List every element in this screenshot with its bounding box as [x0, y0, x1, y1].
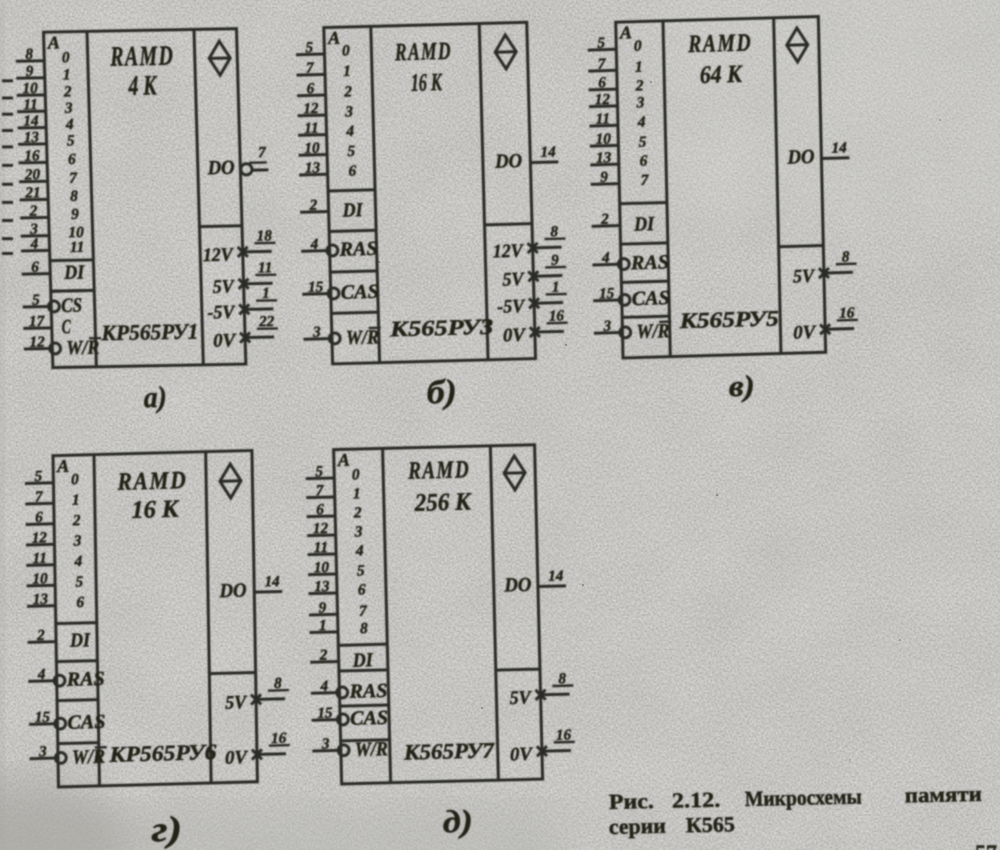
svg-text:2: 2: [343, 83, 352, 100]
svg-text:1: 1: [635, 59, 643, 76]
svg-text:RAS: RAS: [338, 238, 378, 261]
svg-text:1: 1: [319, 617, 327, 634]
svg-text:14: 14: [264, 573, 280, 590]
svg-text:11: 11: [32, 550, 47, 567]
svg-text:12: 12: [29, 333, 45, 350]
svg-text:КР565РУ6: КР565РУ6: [108, 739, 216, 767]
svg-text:RAMD: RAMD: [109, 41, 175, 73]
svg-text:12V: 12V: [492, 241, 524, 263]
svg-text:3: 3: [73, 532, 82, 549]
svg-text:DI: DI: [341, 199, 364, 222]
svg-text:CAS: CAS: [340, 281, 379, 304]
svg-text:RAS: RAS: [66, 668, 105, 691]
svg-text:DO: DO: [494, 150, 523, 173]
svg-text:3: 3: [312, 324, 321, 341]
svg-text:16: 16: [24, 147, 40, 164]
svg-text:9: 9: [551, 252, 559, 269]
svg-text:DO: DO: [503, 574, 531, 597]
svg-text:64 К: 64 К: [700, 61, 744, 89]
svg-text:1: 1: [343, 63, 351, 80]
svg-text:DI: DI: [633, 213, 655, 236]
svg-text:16 К: 16 К: [410, 69, 443, 97]
svg-text:16: 16: [271, 730, 287, 747]
svg-text:д): д): [442, 803, 473, 840]
svg-text:8: 8: [550, 223, 558, 240]
svg-text:6: 6: [35, 509, 43, 526]
svg-text:4: 4: [637, 114, 646, 131]
svg-text:2: 2: [635, 77, 644, 94]
svg-text:6: 6: [358, 581, 366, 598]
svg-text:3: 3: [344, 103, 353, 120]
svg-text:5: 5: [75, 573, 83, 590]
svg-text:DO: DO: [786, 146, 814, 169]
svg-text:6: 6: [598, 74, 606, 91]
svg-text:11: 11: [258, 259, 273, 276]
svg-text:5: 5: [638, 134, 646, 151]
svg-text:DI: DI: [352, 649, 375, 672]
svg-text:12: 12: [313, 520, 329, 537]
svg-text:21: 21: [24, 184, 41, 201]
svg-text:4: 4: [309, 236, 318, 253]
svg-text:9: 9: [26, 63, 34, 80]
svg-text:CAS: CAS: [632, 287, 670, 310]
svg-text:16: 16: [549, 307, 565, 324]
svg-text:W/R: W/R: [66, 337, 100, 360]
svg-text:3: 3: [38, 743, 47, 760]
svg-text:0V: 0V: [213, 330, 237, 351]
svg-text:A: A: [47, 32, 61, 52]
svg-text:5: 5: [597, 34, 605, 51]
svg-text:3: 3: [354, 523, 363, 540]
svg-text:К565РУ5: К565РУ5: [678, 305, 779, 333]
svg-text:RAMD: RAMD: [394, 38, 452, 67]
svg-text:14: 14: [831, 139, 847, 156]
svg-text:DI: DI: [63, 261, 86, 283]
svg-text:A: A: [56, 456, 69, 476]
svg-text:15: 15: [599, 285, 615, 302]
svg-text:5V: 5V: [225, 692, 248, 714]
svg-text:в): в): [728, 370, 755, 404]
svg-text:г): г): [151, 809, 183, 850]
svg-text:18: 18: [256, 227, 272, 244]
svg-text:A: A: [337, 450, 350, 470]
svg-text:8: 8: [558, 670, 566, 687]
svg-text:9: 9: [600, 169, 608, 186]
svg-text:0: 0: [62, 49, 70, 66]
svg-text:0V: 0V: [793, 322, 817, 344]
svg-text:57: 57: [975, 840, 997, 850]
svg-text:5V: 5V: [509, 687, 532, 709]
svg-text:12: 12: [595, 91, 611, 108]
svg-text:A: A: [619, 22, 632, 42]
svg-text:10: 10: [22, 80, 38, 97]
svg-text:8: 8: [25, 46, 33, 63]
svg-text:10: 10: [595, 130, 611, 147]
svg-text:16 К: 16 К: [131, 496, 180, 524]
svg-text:3: 3: [636, 94, 645, 111]
svg-text:6: 6: [68, 151, 76, 168]
svg-text:4: 4: [601, 249, 610, 266]
svg-text:6: 6: [316, 501, 324, 518]
svg-text:5: 5: [357, 562, 365, 579]
svg-text:0V: 0V: [503, 325, 527, 347]
svg-text:14: 14: [540, 143, 556, 160]
svg-text:20: 20: [24, 166, 41, 183]
svg-text:13: 13: [596, 149, 612, 166]
svg-text:DO: DO: [218, 580, 246, 603]
svg-text:6: 6: [306, 80, 314, 97]
svg-text:CS: CS: [61, 294, 83, 316]
svg-text:0V: 0V: [510, 744, 534, 766]
svg-text:6: 6: [348, 162, 356, 179]
svg-text:5: 5: [347, 143, 355, 160]
svg-text:6: 6: [76, 594, 84, 611]
svg-text:13: 13: [314, 578, 330, 595]
svg-text:0: 0: [71, 471, 79, 488]
svg-text:8: 8: [360, 620, 368, 637]
svg-text:5V: 5V: [793, 266, 816, 288]
svg-text:11: 11: [304, 120, 319, 137]
svg-text:5V: 5V: [502, 269, 525, 291]
svg-text:11: 11: [70, 239, 85, 256]
svg-text:RAMD: RAMD: [116, 467, 187, 496]
svg-text:3: 3: [321, 735, 330, 752]
svg-text:11: 11: [23, 96, 38, 113]
svg-text:3: 3: [602, 318, 611, 335]
svg-text:4 К: 4 К: [127, 70, 158, 102]
svg-text:2: 2: [72, 512, 81, 529]
svg-text:4: 4: [65, 116, 74, 133]
svg-text:2: 2: [353, 504, 362, 521]
svg-text:1: 1: [353, 485, 361, 502]
svg-text:13: 13: [305, 159, 321, 176]
svg-text:W/R: W/R: [72, 746, 105, 769]
svg-text:б): б): [426, 374, 457, 412]
svg-text:RAS: RAS: [630, 251, 669, 274]
svg-text:2: 2: [319, 647, 328, 664]
svg-text:10: 10: [304, 140, 320, 157]
svg-text:5: 5: [32, 292, 40, 309]
svg-text:3: 3: [64, 100, 73, 117]
svg-text:RAS: RAS: [348, 680, 388, 703]
svg-text:RAMD: RAMD: [407, 456, 470, 485]
svg-text:8: 8: [70, 188, 78, 205]
svg-text:4: 4: [319, 678, 328, 695]
svg-text:W/R: W/R: [346, 326, 380, 349]
svg-text:DI: DI: [69, 629, 91, 652]
svg-text:17: 17: [29, 313, 46, 330]
svg-text:13: 13: [24, 129, 40, 146]
svg-text:4: 4: [37, 666, 46, 683]
svg-text:RAMD: RAMD: [687, 29, 752, 58]
svg-text:CAS: CAS: [67, 711, 105, 734]
svg-text:5: 5: [67, 132, 75, 149]
svg-text:5: 5: [34, 468, 42, 485]
svg-text:0V: 0V: [225, 747, 249, 769]
svg-text:12: 12: [303, 100, 319, 117]
svg-text:11: 11: [314, 539, 329, 556]
svg-text:КР565РУ1: КР565РУ1: [100, 319, 199, 346]
svg-text:CAS: CAS: [350, 707, 389, 730]
svg-text:C: C: [61, 316, 71, 338]
svg-text:6: 6: [31, 259, 39, 276]
svg-text:0: 0: [634, 38, 642, 55]
svg-text:4: 4: [355, 542, 364, 559]
svg-text:5: 5: [315, 463, 323, 480]
svg-text:W/R: W/R: [355, 738, 389, 761]
svg-text:-5V: -5V: [207, 302, 236, 324]
svg-text:Микросхемы: Микросхемы: [745, 784, 863, 811]
svg-text:12: 12: [32, 529, 48, 546]
svg-text:13: 13: [33, 591, 49, 608]
svg-text:К565РУ7: К565РУ7: [403, 737, 496, 764]
svg-text:256 К: 256 К: [413, 488, 472, 516]
svg-text:4: 4: [29, 235, 38, 252]
svg-text:W/R: W/R: [636, 320, 669, 343]
svg-text:22: 22: [258, 313, 275, 330]
svg-text:9: 9: [318, 599, 326, 616]
svg-text:памяти: памяти: [905, 782, 983, 808]
svg-text:1: 1: [72, 492, 80, 509]
svg-text:14: 14: [23, 112, 39, 129]
svg-text:1: 1: [63, 66, 71, 83]
svg-text:8: 8: [842, 248, 850, 265]
svg-text:0: 0: [352, 466, 360, 483]
svg-text:4: 4: [345, 123, 354, 140]
svg-text:11: 11: [595, 110, 610, 127]
svg-text:10: 10: [32, 570, 48, 587]
svg-text:2: 2: [600, 211, 609, 228]
svg-text:16: 16: [556, 726, 572, 743]
svg-text:серии: серии: [609, 814, 667, 839]
svg-text:0: 0: [342, 42, 350, 59]
svg-text:2: 2: [28, 202, 37, 219]
svg-text:1: 1: [262, 285, 270, 302]
svg-text:5V: 5V: [212, 276, 235, 297]
svg-text:12V: 12V: [203, 245, 235, 267]
svg-text:-5V: -5V: [497, 296, 526, 318]
svg-text:15: 15: [308, 278, 324, 295]
svg-text:2: 2: [308, 197, 317, 214]
svg-text:6: 6: [639, 152, 647, 169]
svg-text:8: 8: [274, 675, 282, 692]
svg-text:К565РУ3: К565РУ3: [389, 314, 494, 342]
svg-text:2: 2: [36, 627, 45, 644]
svg-text:5: 5: [305, 39, 313, 56]
svg-text:9: 9: [71, 206, 79, 223]
svg-text:15: 15: [317, 704, 333, 721]
svg-text:10: 10: [314, 559, 330, 576]
svg-text:4: 4: [73, 553, 82, 570]
svg-text:1: 1: [552, 279, 560, 296]
svg-text:A: A: [327, 28, 341, 48]
svg-text:2: 2: [63, 83, 72, 100]
svg-text:14: 14: [548, 567, 564, 584]
svg-text:DO: DO: [206, 157, 235, 180]
svg-text:2.12.: 2.12.: [672, 788, 721, 813]
svg-text:16: 16: [839, 304, 855, 321]
svg-text:Рис.: Рис.: [609, 789, 655, 814]
svg-text:а): а): [143, 381, 167, 415]
svg-text:К565: К565: [686, 812, 736, 837]
svg-text:15: 15: [35, 709, 51, 726]
